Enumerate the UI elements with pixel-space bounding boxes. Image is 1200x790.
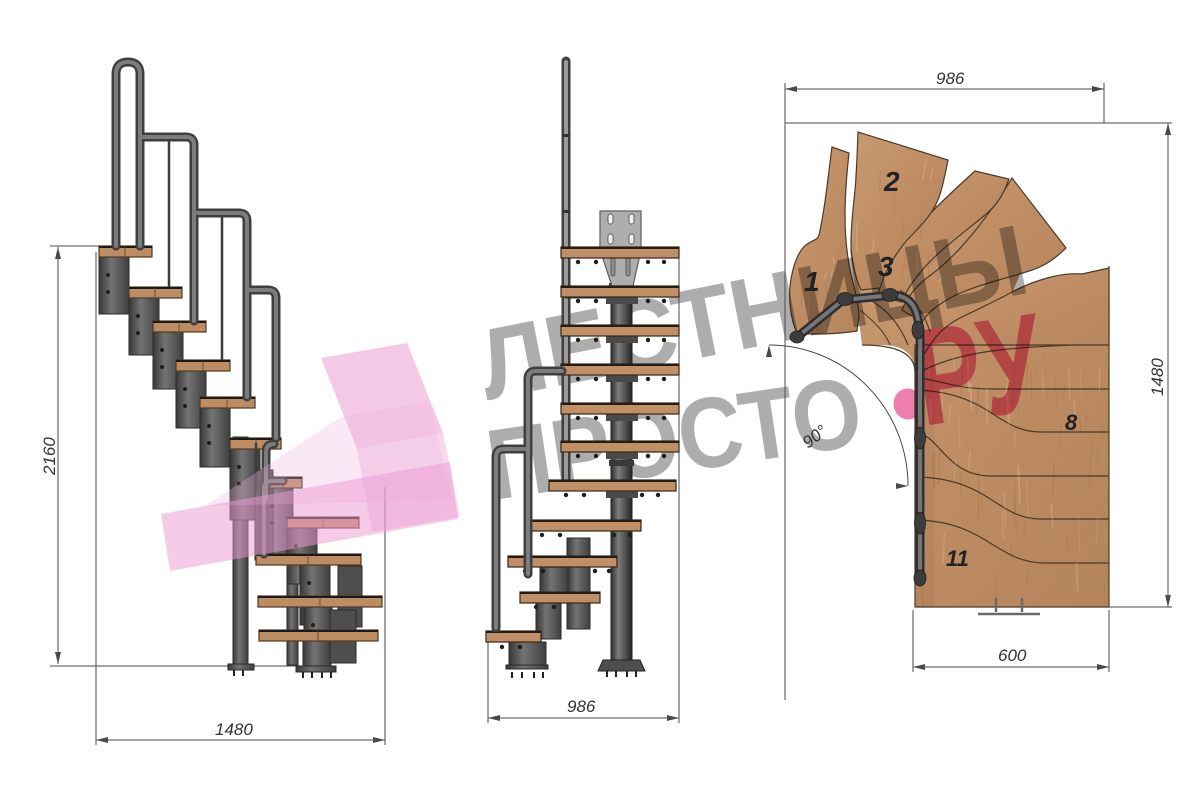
svg-text:2160: 2160 — [40, 437, 59, 476]
svg-text:1480: 1480 — [215, 720, 253, 739]
svg-text:РУ: РУ — [905, 284, 1055, 455]
svg-text:3: 3 — [878, 251, 894, 282]
svg-text:2: 2 — [883, 166, 900, 197]
svg-text:1: 1 — [804, 266, 820, 297]
svg-text:986: 986 — [567, 697, 596, 716]
svg-text:1480: 1480 — [1148, 358, 1167, 396]
svg-text:986: 986 — [936, 69, 965, 88]
svg-text:11: 11 — [946, 546, 969, 571]
svg-text:8: 8 — [1065, 410, 1078, 435]
svg-text:600: 600 — [998, 646, 1027, 665]
